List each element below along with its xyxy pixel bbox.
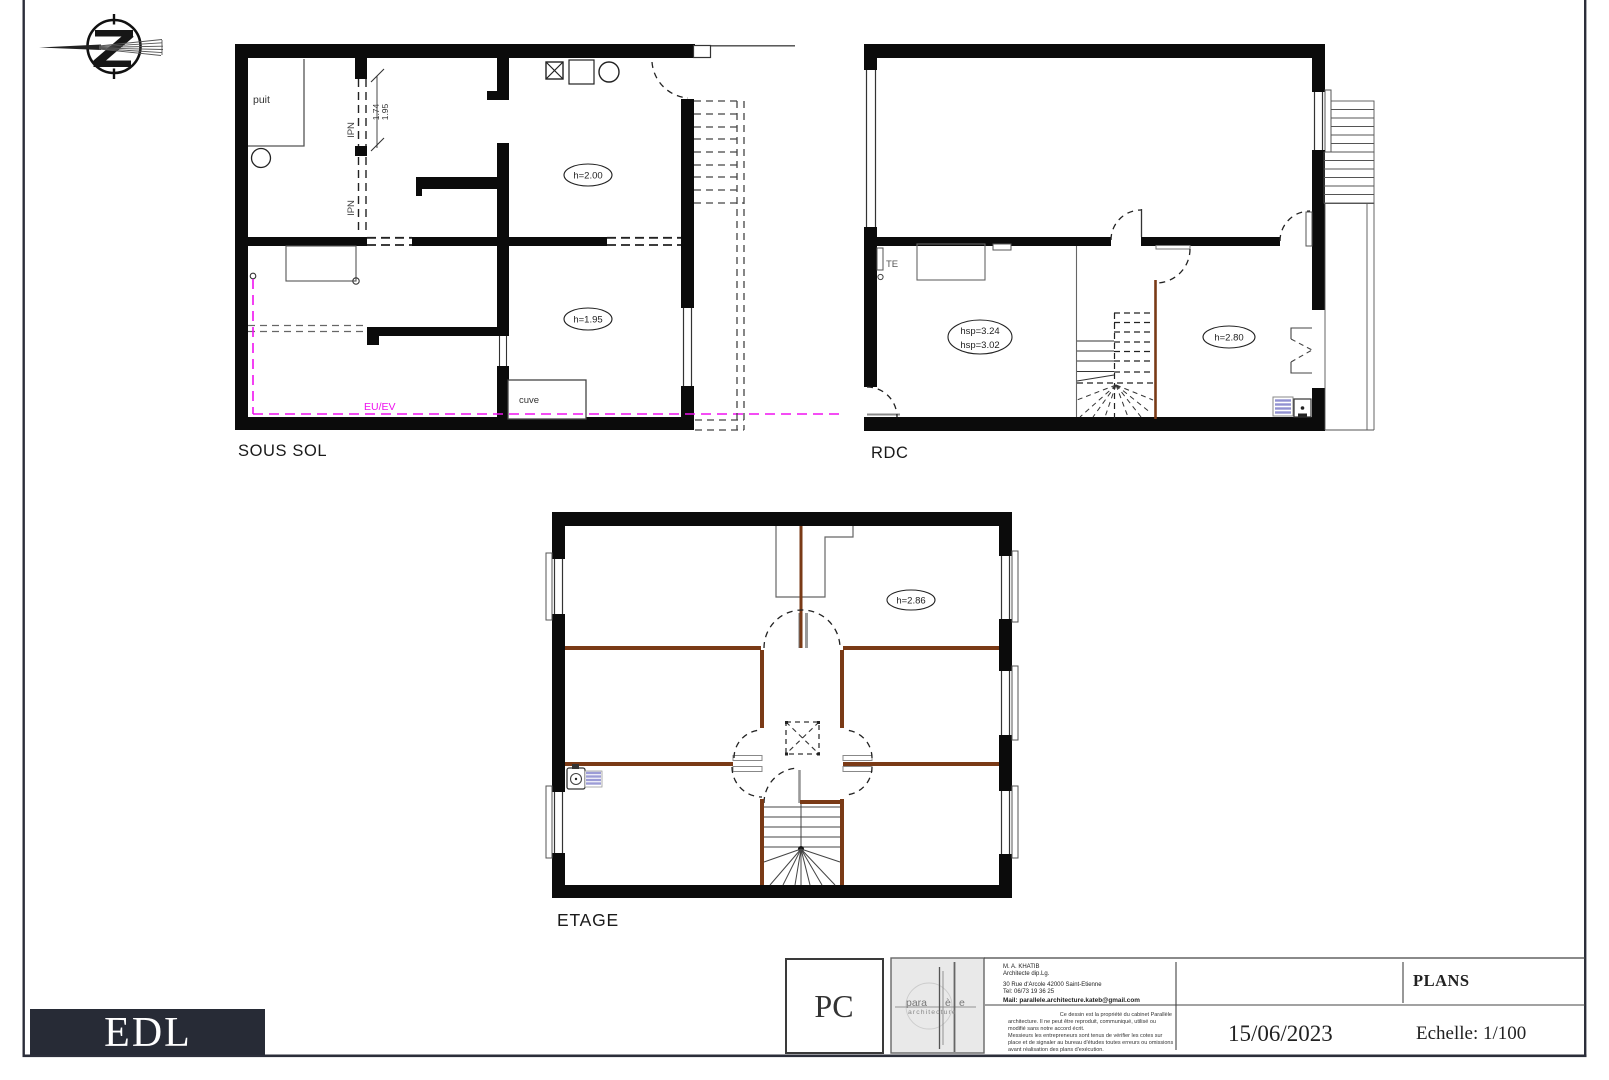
- svg-text:modifié sans notre accord écri: modifié sans notre accord écrit.: [1008, 1026, 1085, 1032]
- svg-text:para: para: [906, 997, 927, 1009]
- svg-text:avant réalisation des plans d': avant réalisation des plans d'exécution.: [1008, 1047, 1104, 1053]
- svg-text:Messieurs les entrepreneurs so: Messieurs les entrepreneurs sont tenus d…: [1008, 1033, 1163, 1039]
- svg-text:h=2.80: h=2.80: [1214, 333, 1243, 344]
- svg-text:PC: PC: [814, 988, 853, 1024]
- svg-text:PLANS: PLANS: [1413, 971, 1470, 990]
- svg-text:15/06/2023: 15/06/2023: [1228, 1021, 1333, 1046]
- svg-text:EDL: EDL: [104, 1010, 192, 1056]
- svg-text:Architecte dip.Lg.: Architecte dip.Lg.: [1003, 971, 1050, 977]
- svg-text:hsp=3.02: hsp=3.02: [960, 340, 999, 351]
- svg-text:IPN: IPN: [346, 200, 357, 216]
- svg-text:TE: TE: [886, 259, 898, 270]
- svg-text:h=1.95: h=1.95: [573, 315, 602, 326]
- svg-text:h=2.86: h=2.86: [896, 596, 925, 607]
- svg-text:EU/EV: EU/EV: [364, 401, 396, 413]
- svg-text:IPN: IPN: [346, 122, 357, 138]
- svg-text:Mail: parallele.architecture.k: Mail: parallele.architecture.kateb@gmail…: [1003, 997, 1140, 1004]
- svg-text:è: è: [945, 997, 951, 1009]
- svg-text:h=2.00: h=2.00: [573, 171, 602, 182]
- svg-text:cuve: cuve: [519, 395, 539, 406]
- svg-text:RDC: RDC: [871, 444, 909, 462]
- svg-text:Ce dessin est la propriété du: Ce dessin est la propriété du cabinet Pa…: [1060, 1012, 1172, 1018]
- svg-text:1.95: 1.95: [380, 103, 390, 120]
- svg-text:SOUS SOL: SOUS SOL: [238, 442, 327, 460]
- svg-text:Echelle: 1/100: Echelle: 1/100: [1416, 1023, 1526, 1044]
- svg-text:architecture: architecture: [908, 1009, 957, 1016]
- svg-text:30 Rue d'Arcole 42000 Saint-Et: 30 Rue d'Arcole 42000 Saint-Etienne: [1003, 982, 1102, 988]
- svg-text:M. A. KHATIB: M. A. KHATIB: [1003, 964, 1040, 970]
- svg-text:hsp=3.24: hsp=3.24: [960, 326, 999, 337]
- svg-text:architecture. Il ne peut être: architecture. Il ne peut être reproduit,…: [1008, 1019, 1156, 1025]
- svg-text:e: e: [959, 997, 965, 1009]
- svg-text:ETAGE: ETAGE: [557, 910, 619, 930]
- svg-text:puit: puit: [253, 94, 270, 106]
- svg-text:Tel: 06/73 19 36 25: Tel: 06/73 19 36 25: [1003, 989, 1055, 995]
- svg-text:place et de signaler au bureau: place et de signaler au bureau d'études …: [1008, 1040, 1173, 1046]
